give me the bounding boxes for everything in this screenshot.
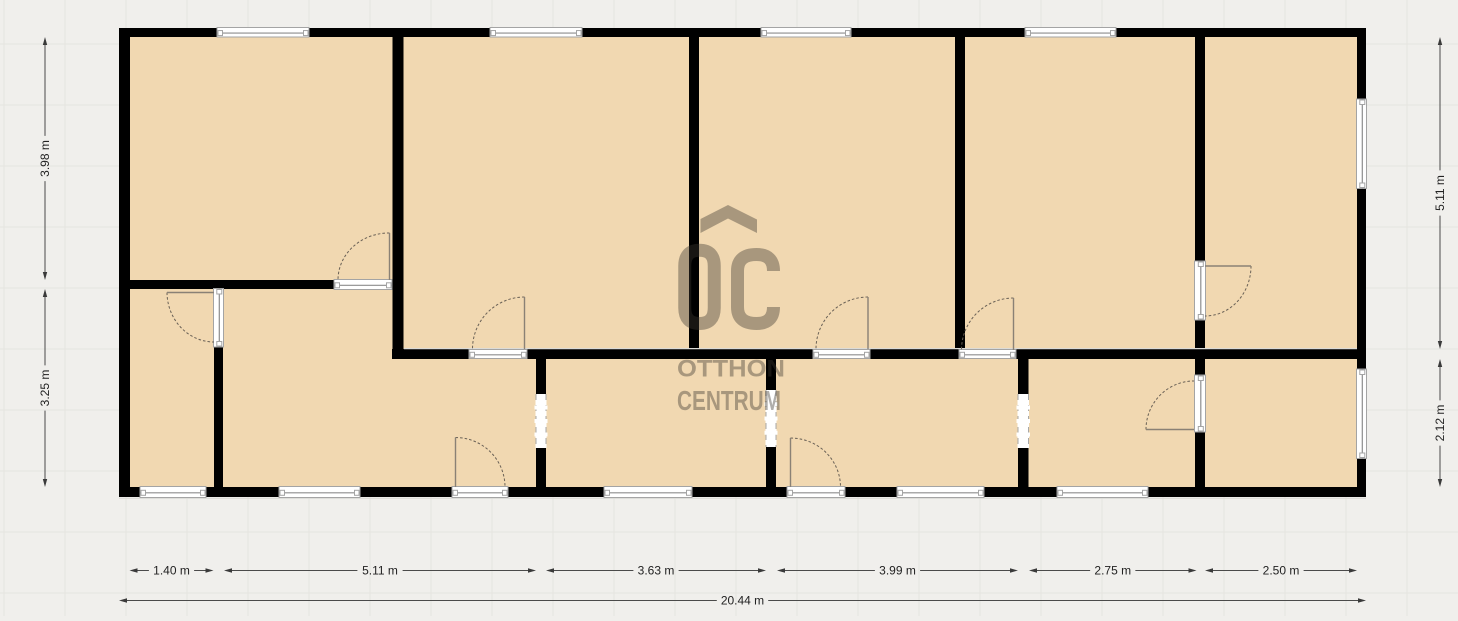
svg-text:3.99 m: 3.99 m [879,564,916,578]
svg-text:CENTRUM: CENTRUM [677,385,781,416]
svg-text:1.40 m: 1.40 m [153,564,190,578]
svg-text:OTTHON: OTTHON [677,356,785,383]
svg-text:2.75 m: 2.75 m [1094,564,1131,578]
svg-text:5.11 m: 5.11 m [362,564,398,578]
svg-text:2.50 m: 2.50 m [1263,564,1300,578]
svg-text:3.25 m: 3.25 m [38,370,52,407]
svg-text:5.11 m: 5.11 m [1433,175,1447,211]
svg-text:3.98 m: 3.98 m [38,140,52,177]
svg-text:3.63 m: 3.63 m [638,564,675,578]
svg-text:2.12 m: 2.12 m [1433,405,1447,442]
svg-text:20.44 m: 20.44 m [721,594,764,608]
